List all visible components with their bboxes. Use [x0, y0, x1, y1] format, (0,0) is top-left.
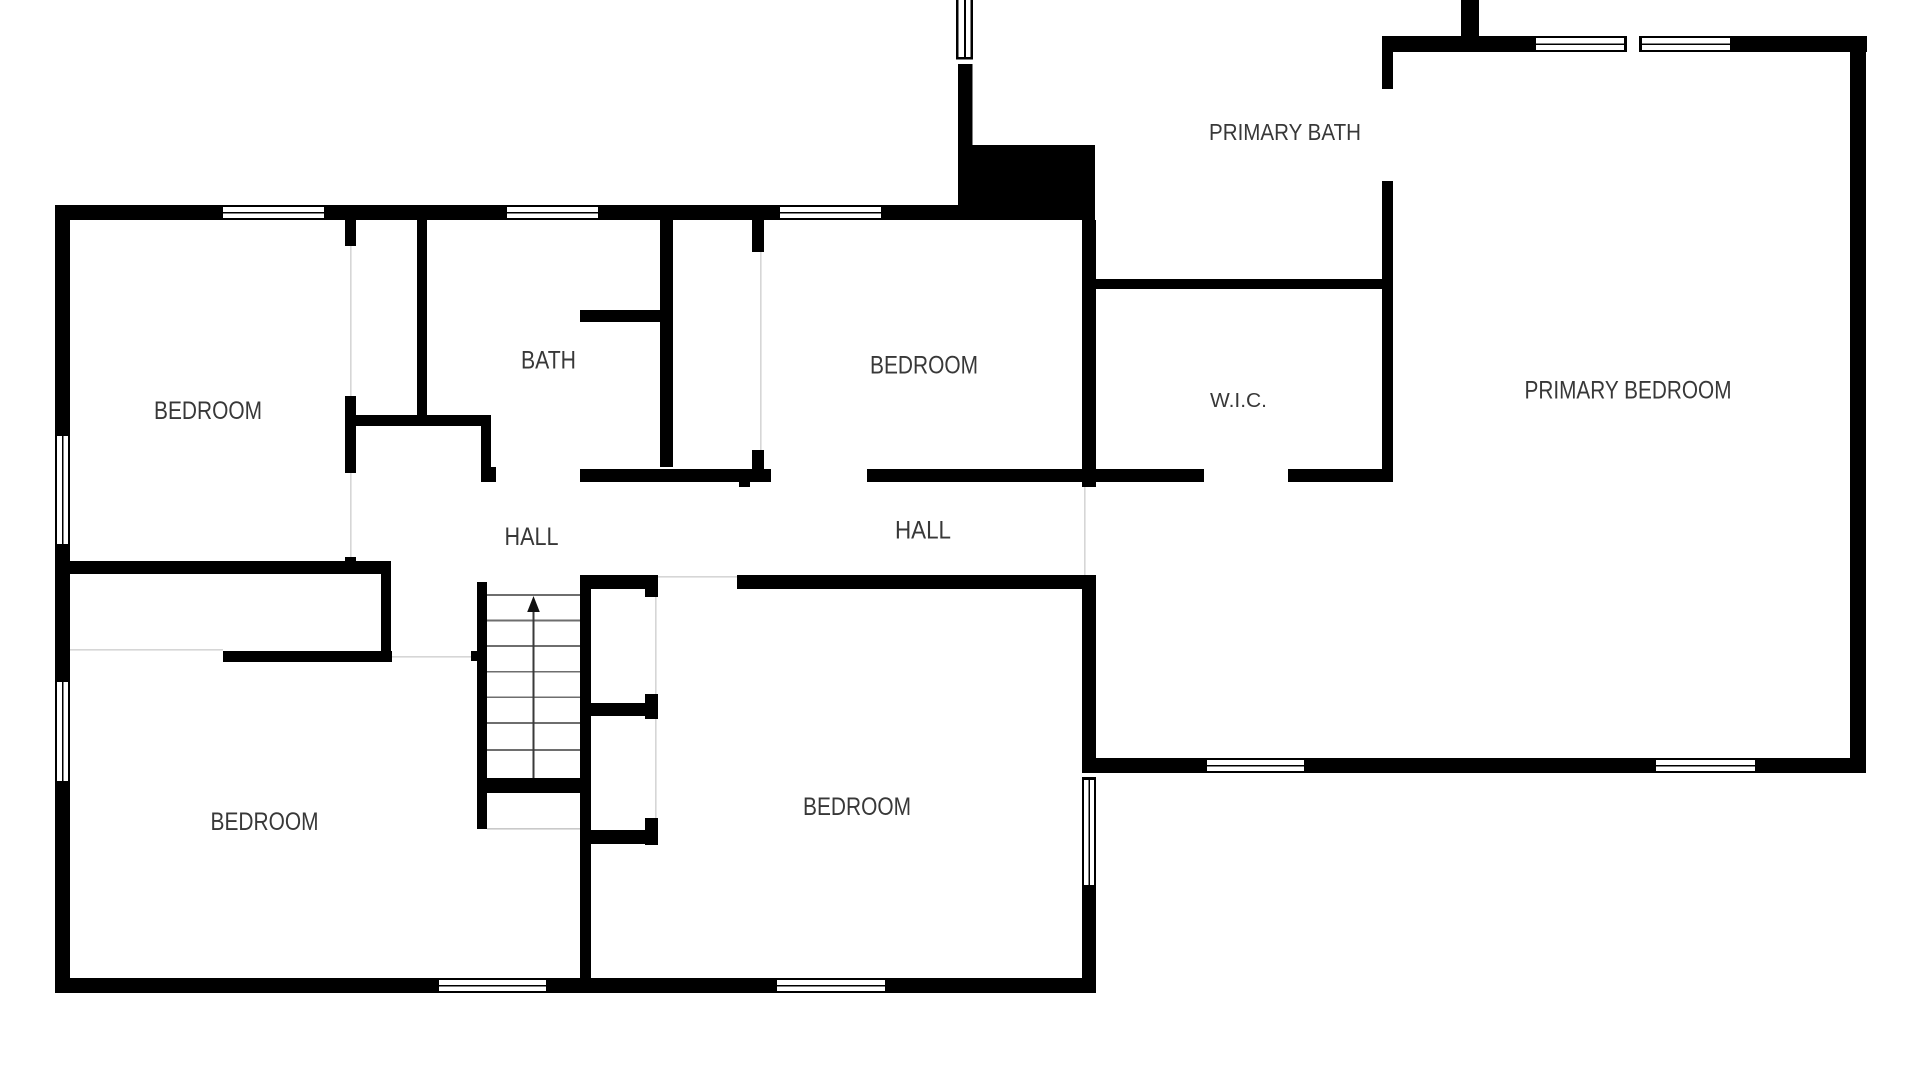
- svg-text:BATH: BATH: [521, 347, 576, 375]
- svg-text:BEDROOM: BEDROOM: [211, 808, 319, 836]
- svg-text:BEDROOM: BEDROOM: [870, 352, 978, 380]
- svg-text:BEDROOM: BEDROOM: [803, 793, 911, 821]
- svg-text:PRIMARY BEDROOM: PRIMARY BEDROOM: [1525, 377, 1732, 405]
- svg-text:PRIMARY BATH: PRIMARY BATH: [1209, 119, 1361, 145]
- svg-text:HALL: HALL: [895, 517, 951, 545]
- svg-text:BEDROOM: BEDROOM: [154, 397, 262, 425]
- svg-text:HALL: HALL: [505, 523, 559, 551]
- svg-text:W.I.C.: W.I.C.: [1210, 389, 1267, 412]
